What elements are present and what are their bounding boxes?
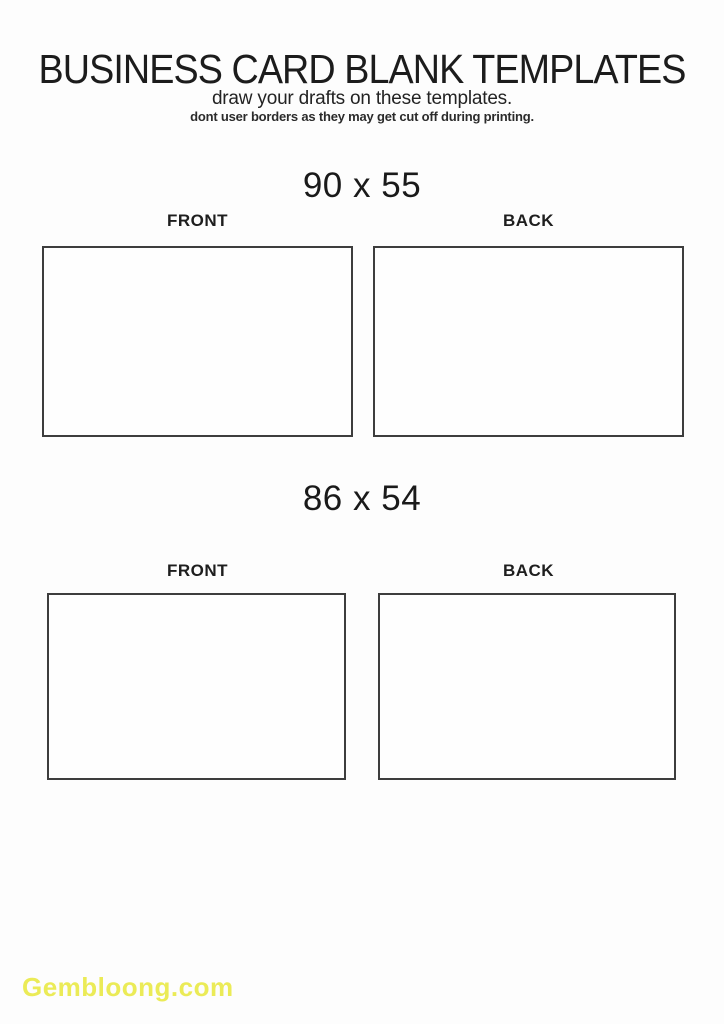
watermark-text: Gembloong.com xyxy=(22,972,234,1003)
page-title: BUSINESS CARD BLANK TEMPLATES xyxy=(29,46,695,93)
section-size-heading-86x54: 86 x 54 xyxy=(0,479,724,519)
back-label: BACK xyxy=(373,211,684,231)
page-subtitle: draw your drafts on these templates. xyxy=(0,88,724,110)
section-size-heading-90x55: 90 x 55 xyxy=(0,166,724,206)
template-page: BUSINESS CARD BLANK TEMPLATES draw your … xyxy=(0,0,724,1024)
card-back-template-90x55 xyxy=(373,246,684,437)
front-label: FRONT xyxy=(42,561,353,581)
card-front-template-86x54 xyxy=(47,593,346,780)
back-label: BACK xyxy=(373,561,684,581)
print-warning-note: dont user borders as they may get cut of… xyxy=(0,109,724,124)
front-label: FRONT xyxy=(42,211,353,231)
card-front-template-90x55 xyxy=(42,246,353,437)
card-back-template-86x54 xyxy=(378,593,676,780)
